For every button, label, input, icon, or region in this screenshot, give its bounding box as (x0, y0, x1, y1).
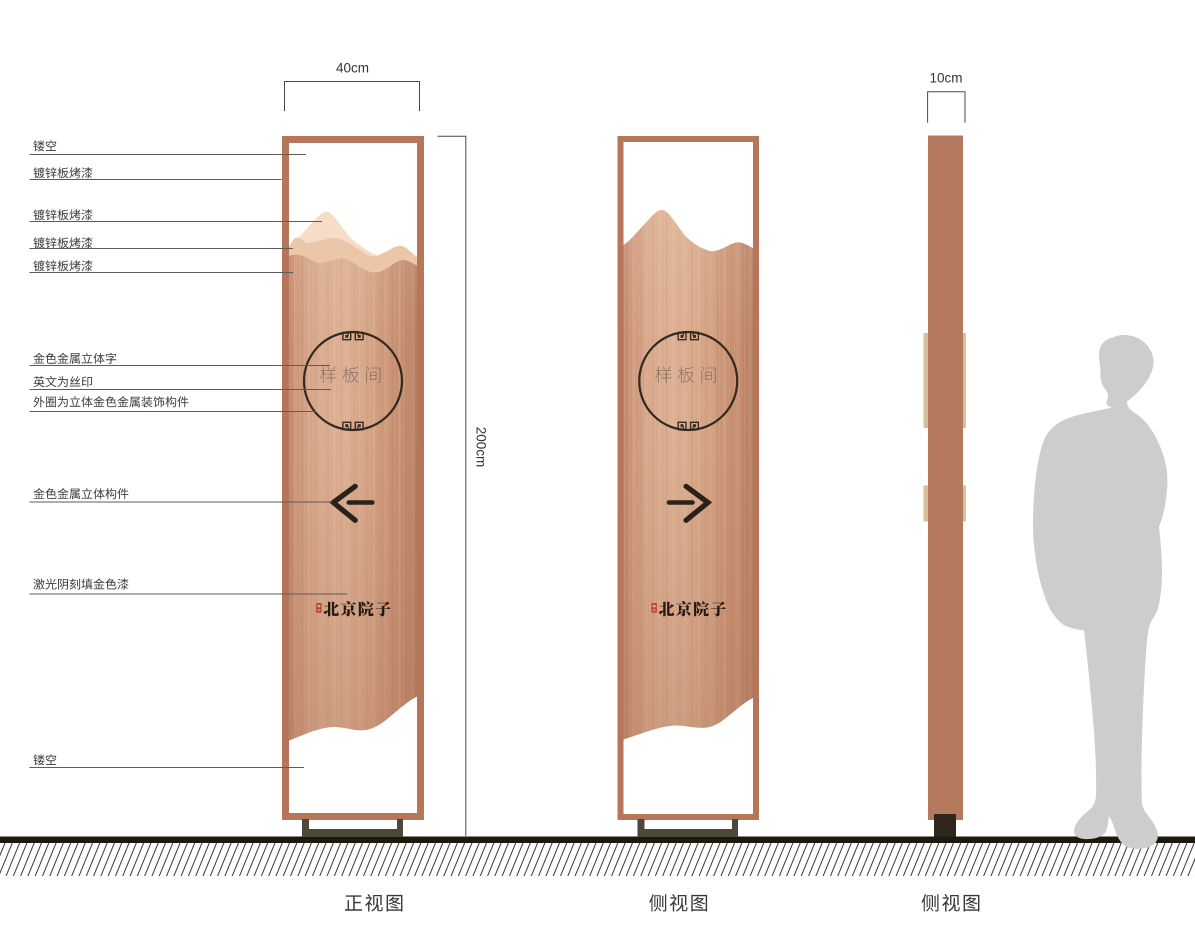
svg-text:200cm: 200cm (474, 427, 489, 468)
svg-text:SAMPLE ROOM: SAMPLE ROOM (331, 387, 374, 392)
svg-text:40cm: 40cm (336, 61, 369, 76)
svg-text:10cm: 10cm (929, 71, 962, 86)
svg-text:SAMPLE ROOM: SAMPLE ROOM (667, 387, 710, 392)
